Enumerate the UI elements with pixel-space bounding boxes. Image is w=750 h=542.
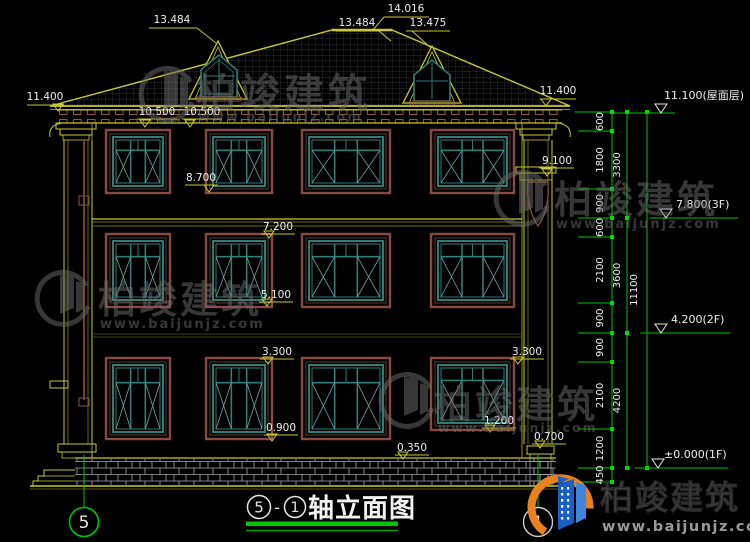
floor-band-2f: [92, 334, 522, 337]
floor-band-3f: [92, 219, 522, 226]
watermark-bottom: 柏竣建筑 www.baijunjz.com: [381, 373, 598, 435]
window: [302, 234, 390, 307]
right-dimension-chains: 6001800900600210090090021001200450330036…: [575, 89, 744, 485]
drawing-title: 5 - 1 轴立面图: [246, 493, 416, 531]
window: [206, 358, 272, 439]
dimension-segment-label: 900: [595, 338, 606, 357]
dimension-segment-label: 1800: [595, 147, 606, 172]
window: [431, 234, 514, 307]
window: [302, 358, 390, 439]
level-marker-label: ±0.000(1F): [664, 448, 727, 461]
level-marker-label: 4.200(2F): [671, 313, 724, 326]
dimension-total-label: 11100: [629, 274, 640, 306]
logo-brand: 柏竣建筑: [600, 478, 740, 517]
watermark-brand: 柏竣建筑: [554, 178, 718, 222]
window: [106, 130, 170, 193]
logo-url: www.baijunjz.com: [602, 519, 750, 535]
dimension-segment-label: 900: [595, 308, 606, 327]
elevation-label: 3.300: [512, 346, 542, 358]
drawing-viewport: 6001800900600210090090021001200450330036…: [0, 0, 750, 542]
elevation-label: 11.400: [540, 85, 577, 97]
watermark-top: 柏竣建筑 www.baijunjz.com: [141, 67, 372, 125]
entry-steps: [33, 470, 75, 486]
wall-ledge: [50, 381, 68, 388]
elevation-label: 13.484: [154, 14, 191, 26]
watermark-url: www.baijunjz.com: [100, 317, 265, 332]
stone-plinth: [75, 459, 556, 485]
title-text: 轴立面图: [308, 493, 416, 524]
watermark-url: www.baijunjz.com: [438, 420, 598, 435]
title-underline: [246, 522, 398, 527]
watermark-left: 柏竣建筑 www.baijunjz.com: [37, 271, 265, 332]
cad-canvas: 6001800900600210090090021001200450330036…: [0, 0, 750, 542]
window: [106, 358, 170, 439]
elevation-label: 8.700: [186, 172, 216, 184]
elevation-label: 14.016: [388, 3, 425, 15]
window: [302, 130, 390, 193]
title-separator: -: [274, 498, 280, 517]
base: [30, 458, 570, 489]
elevation-label: 13.475: [410, 17, 447, 29]
dimension-floor-label: 4200: [612, 388, 623, 413]
title-axis-to: 1: [291, 500, 300, 516]
dimension-floor-label: 3300: [612, 152, 623, 177]
watermark-url: www.baijunjz.com: [198, 110, 363, 125]
level-marker-label: 11.100(屋面层): [664, 89, 744, 102]
elevation-label: 13.484: [339, 17, 376, 29]
dimension-floor-label: 3600: [612, 263, 623, 288]
watermark-url: www.baijunjz.com: [556, 217, 721, 232]
dimension-segment-label: 2100: [595, 257, 606, 282]
elevation-label: 0.900: [266, 422, 296, 434]
elevation-label: 11.400: [27, 91, 64, 103]
title-axis-from: 5: [254, 499, 264, 517]
dimension-segment-label: 1200: [595, 436, 606, 461]
dimension-segment-label: 600: [595, 112, 606, 131]
grid-bubble-left-label: 5: [79, 513, 90, 533]
watermark-right: 柏竣建筑 www.baijunjz.com: [496, 171, 721, 232]
watermark-brand: 柏竣建筑: [98, 278, 262, 322]
elevation-label: 3.300: [262, 346, 292, 358]
site-logo: 柏竣建筑 www.baijunjz.com: [525, 472, 750, 535]
elevation-label: 9.100: [542, 155, 572, 167]
